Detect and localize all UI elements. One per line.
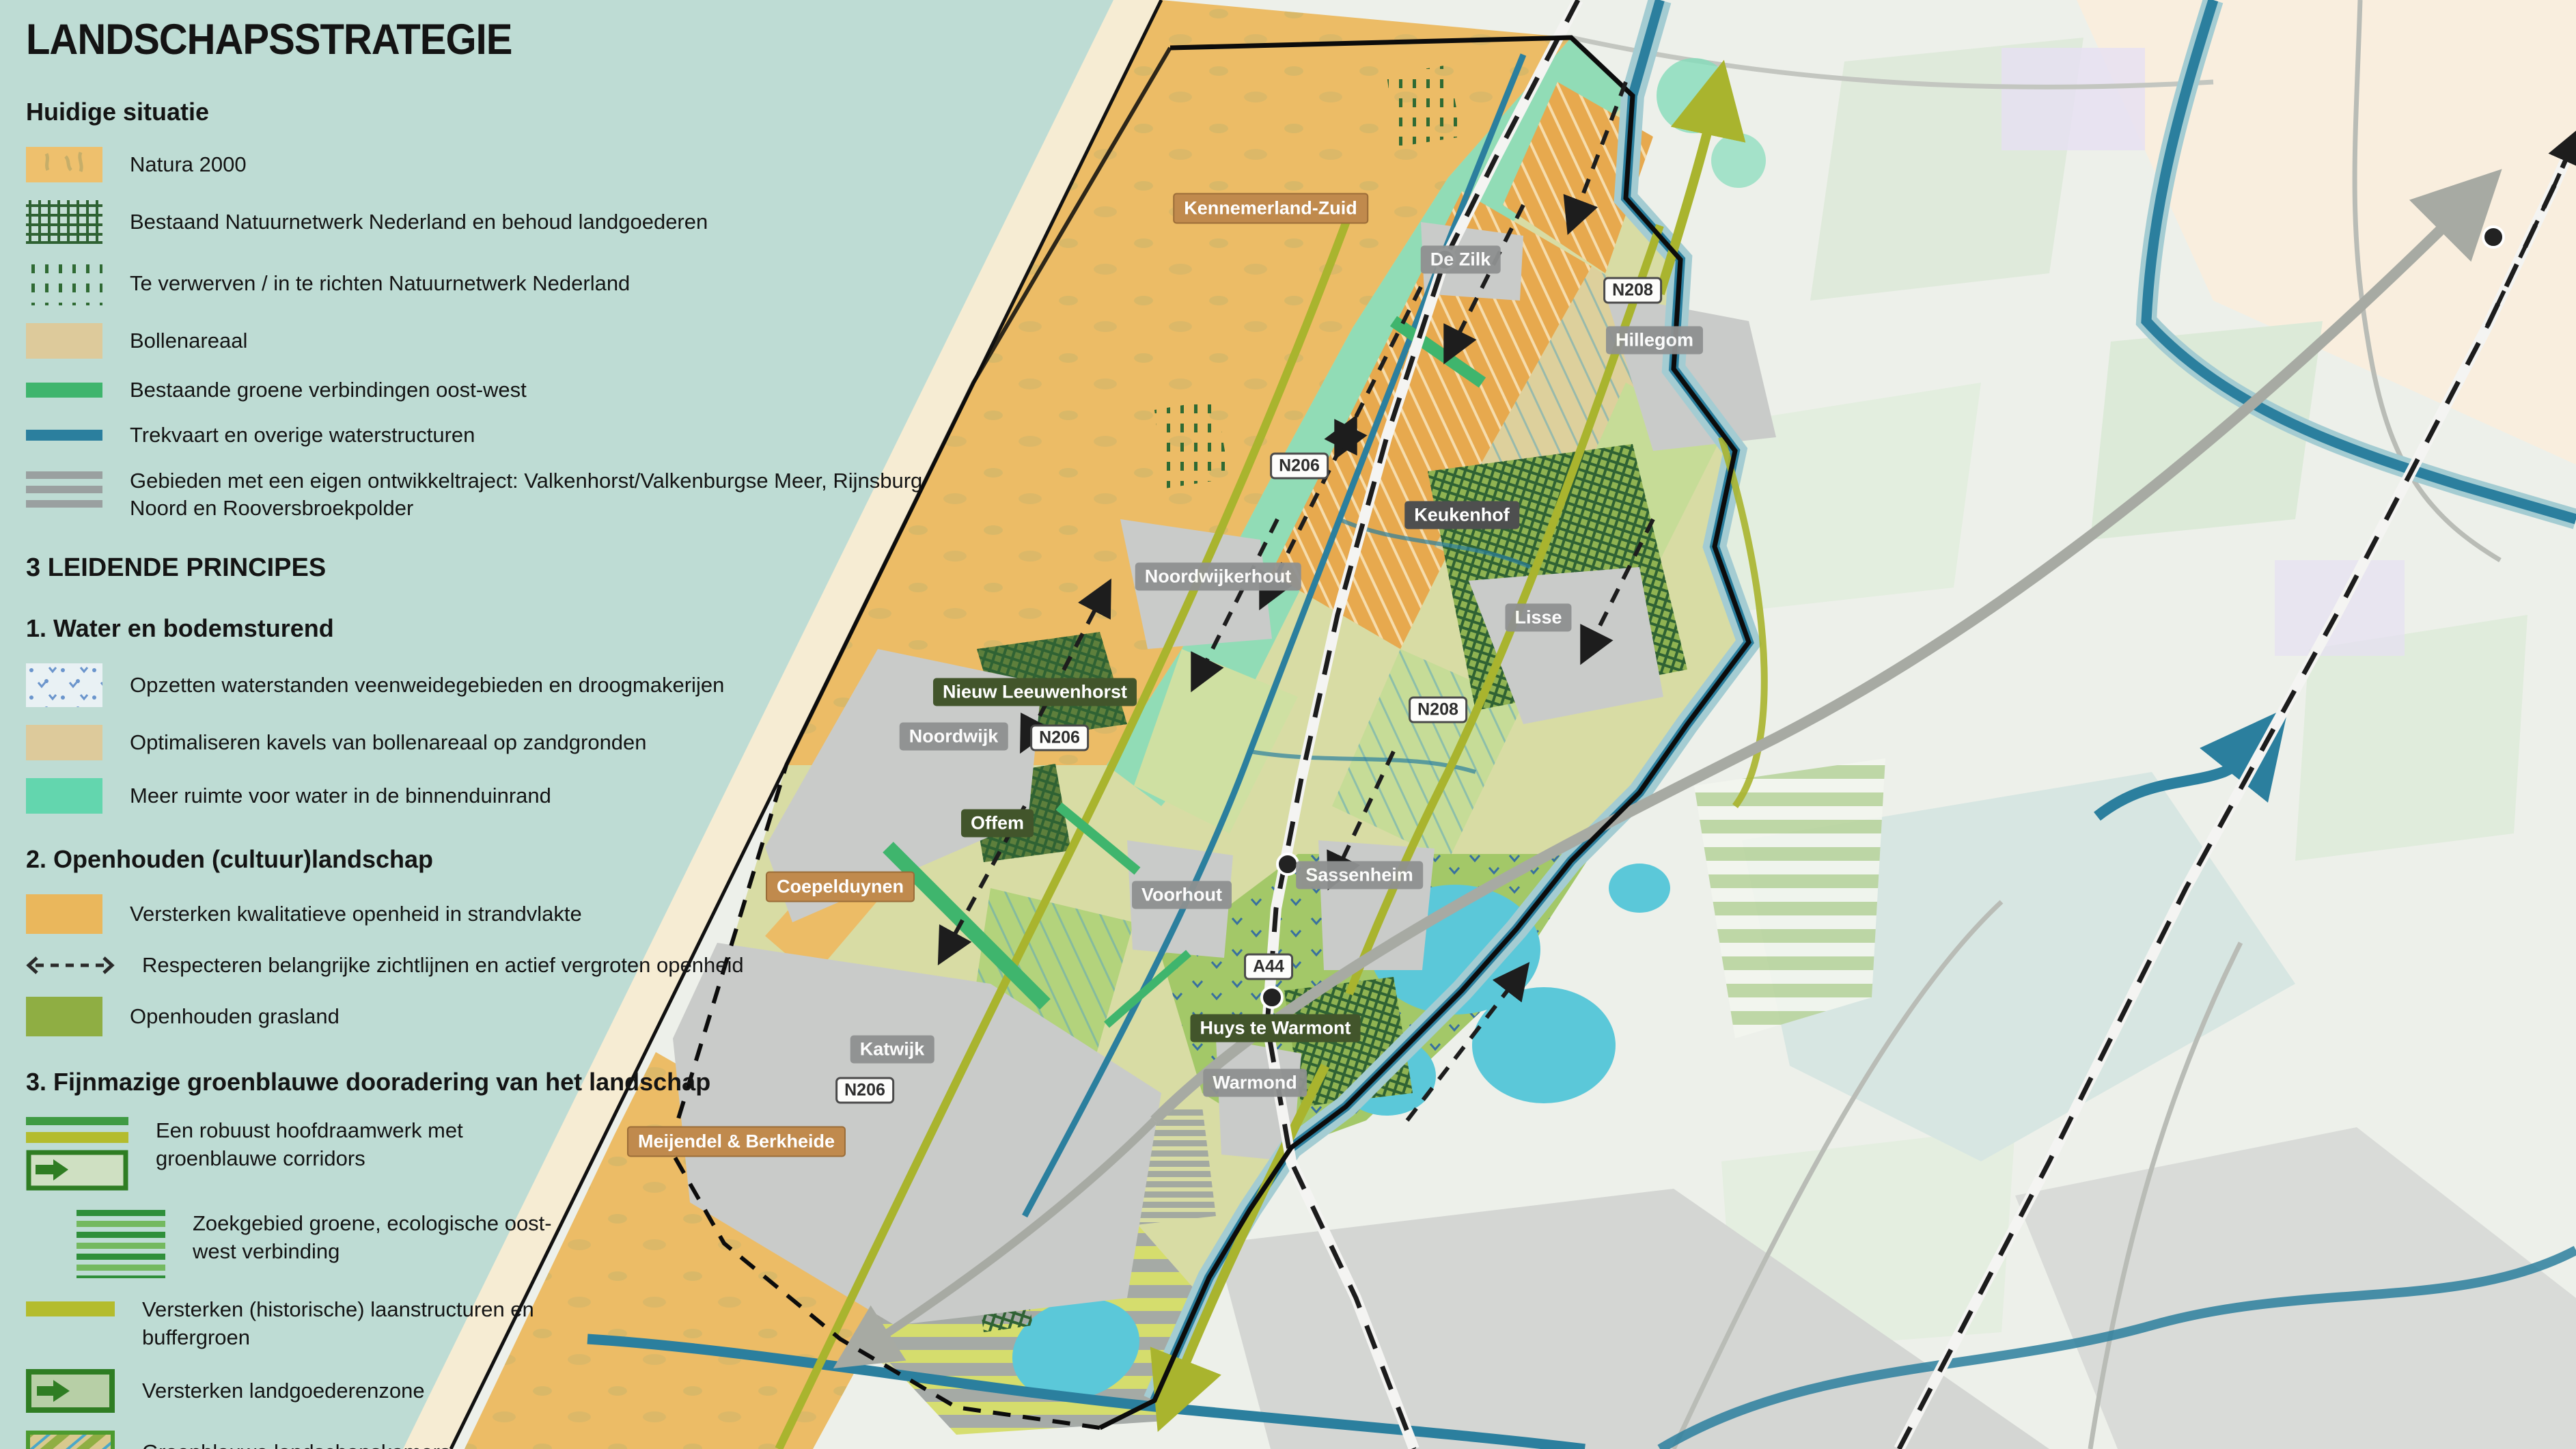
tan-swatch-icon <box>26 725 102 760</box>
map-label-huys-te-warmont: Huys te Warmont <box>1190 1015 1360 1043</box>
map-label-noordwijkerhout: Noordwijkerhout <box>1135 563 1301 591</box>
dashed-green-swatch-icon <box>26 262 102 305</box>
landscape-strategy-map-page: Kennemerland-Zuid De Zilk N208 Hillegom … <box>0 0 2576 1449</box>
legend-item-label: Bestaande groene verbindingen oost-west <box>130 376 527 404</box>
map-label-n206-north: N206 <box>1270 453 1329 480</box>
legend-item-label: Natura 2000 <box>130 151 247 178</box>
legend-item-label: Te verwerven / in te richten Natuurnetwe… <box>130 270 630 297</box>
teal-bar-swatch-icon <box>26 426 102 444</box>
legend-item-label: Versterken landgoederenzone <box>142 1377 425 1405</box>
legend-item-label: Opzetten waterstanden veenweidegebieden … <box>130 672 724 699</box>
legend-item-meer-ruimte-water: Meer ruimte voor water in de binnenduinr… <box>26 778 982 814</box>
map-label-n208-south: N208 <box>1409 697 1467 723</box>
legend-item-label: Bestaand Natuurnetwerk Nederland en beho… <box>130 208 708 236</box>
landscape-rooms-swatch-icon <box>26 1431 115 1449</box>
map-label-kennemerland-zuid: Kennemerland-Zuid <box>1173 193 1368 224</box>
legend-item-laanstructuren: Versterken (historische) laanstructuren … <box>26 1296 982 1351</box>
legend-item-label: Gebieden met een eigen ontwikkeltraject:… <box>130 467 977 523</box>
legend-item-trekvaart: Trekvaart en overige waterstructuren <box>26 422 982 449</box>
map-label-voorhout: Voorhout <box>1132 881 1232 909</box>
legend-item-label: Bollenareaal <box>130 327 247 355</box>
map-label-a44: A44 <box>1244 954 1293 980</box>
map-label-hillegom: Hillegom <box>1606 327 1703 355</box>
map-label-keukenhof: Keukenhof <box>1404 501 1519 529</box>
orange-swatch-icon <box>26 894 102 934</box>
natura2000-swatch-icon <box>26 147 102 182</box>
legend-item-label: Meer ruimte voor water in de binnenduinr… <box>130 782 551 810</box>
principle-2-heading: 2. Openhouden (cultuur)landschap <box>26 845 982 874</box>
legend-item-natura-2000: Natura 2000 <box>26 147 982 182</box>
principle-3-heading: 3. Fijnmazige groenblauwe dooradering va… <box>26 1068 982 1096</box>
legend-item-label: Openhouden grasland <box>130 1003 340 1030</box>
legend-item-bestaand-natuurnetwerk: Bestaand Natuurnetwerk Nederland en beho… <box>26 200 982 244</box>
mint-swatch-icon <box>26 778 102 814</box>
map-label-de-zilk: De Zilk <box>1421 246 1501 274</box>
map-label-warmond: Warmond <box>1203 1069 1307 1097</box>
legend-item-opzetten-waterstanden: Opzetten waterstanden veenweidegebieden … <box>26 663 982 707</box>
page-title: LANDSCHAPSSTRATEGIE <box>26 15 982 64</box>
legend-item-eigen-ontwikkeltraject: Gebieden met een eigen ontwikkeltraject:… <box>26 467 982 523</box>
crosshatch-green-swatch-icon <box>26 200 102 244</box>
legend-item-label: Versterken (historische) laanstructuren … <box>142 1296 607 1351</box>
legend-item-openhouden-grasland: Openhouden grasland <box>26 997 982 1036</box>
legend-item-te-verwerven-natuurnetwerk: Te verwerven / in te richten Natuurnetwe… <box>26 262 982 305</box>
grey-stripes-swatch-icon <box>26 467 102 511</box>
legend-item-robuust-hoofdraamwerk: Een robuust hoofdraamwerk met groenblauw… <box>26 1117 982 1192</box>
map-label-n206-mid: N206 <box>1030 725 1089 751</box>
olive-green-swatch-icon <box>26 997 102 1036</box>
legend-item-bollenareaal: Bollenareaal <box>26 323 982 359</box>
framework-corridor-icon <box>26 1117 128 1192</box>
legend-item-optimaliseren-kavels: Optimaliseren kavels van bollenareaal op… <box>26 725 982 760</box>
legend-item-label: Optimaliseren kavels van bollenareaal op… <box>130 729 647 756</box>
green-bar-swatch-icon <box>26 380 102 400</box>
arrow-box-icon <box>26 1369 115 1413</box>
green-stripes-swatch-icon <box>77 1210 165 1278</box>
section-heading-huidige-situatie: Huidige situatie <box>26 98 982 126</box>
legend-item-versterken-openheid: Versterken kwalitatieve openheid in stra… <box>26 894 982 934</box>
legend-item-label: Versterken kwalitatieve openheid in stra… <box>130 900 582 928</box>
principle-1-heading: 1. Water en bodemsturend <box>26 614 982 643</box>
legend-item-label: Een robuust hoofdraamwerk met groenblauw… <box>156 1117 579 1172</box>
legend-item-groene-verbindingen: Bestaande groene verbindingen oost-west <box>26 376 982 404</box>
legend-item-respecteren-zichtlijnen: Respecteren belangrijke zichtlijnen en a… <box>26 952 982 979</box>
legend-item-label: Respecteren belangrijke zichtlijnen en a… <box>142 952 744 979</box>
legend-item-label: Zoekgebied groene, ecologische oost-west… <box>193 1210 589 1265</box>
legend-item-landschapskamers: Groenblauwe landschapskamers <box>26 1431 982 1449</box>
olive-bar-swatch-icon <box>26 1296 115 1321</box>
map-label-lisse: Lisse <box>1505 604 1571 632</box>
legend-item-label: Trekvaart en overige waterstructuren <box>130 422 475 449</box>
tan-swatch-icon <box>26 323 102 359</box>
blue-dots-swatch-icon <box>26 663 102 707</box>
legend-item-zoekgebied-oost-west: Zoekgebied groene, ecologische oost-west… <box>77 1210 982 1278</box>
legend-item-landgoederenzone: Versterken landgoederenzone <box>26 1369 982 1413</box>
map-label-sassenheim: Sassenheim <box>1296 861 1423 889</box>
legend-panel: LANDSCHAPSSTRATEGIE Huidige situatie Nat… <box>26 15 982 1449</box>
section-heading-leidende-principes: 3 LEIDENDE PRINCIPES <box>26 553 982 583</box>
legend-item-label: Groenblauwe landschapskamers <box>142 1439 450 1449</box>
dashed-arrow-icon <box>26 954 115 977</box>
map-label-n208-north: N208 <box>1603 277 1662 304</box>
